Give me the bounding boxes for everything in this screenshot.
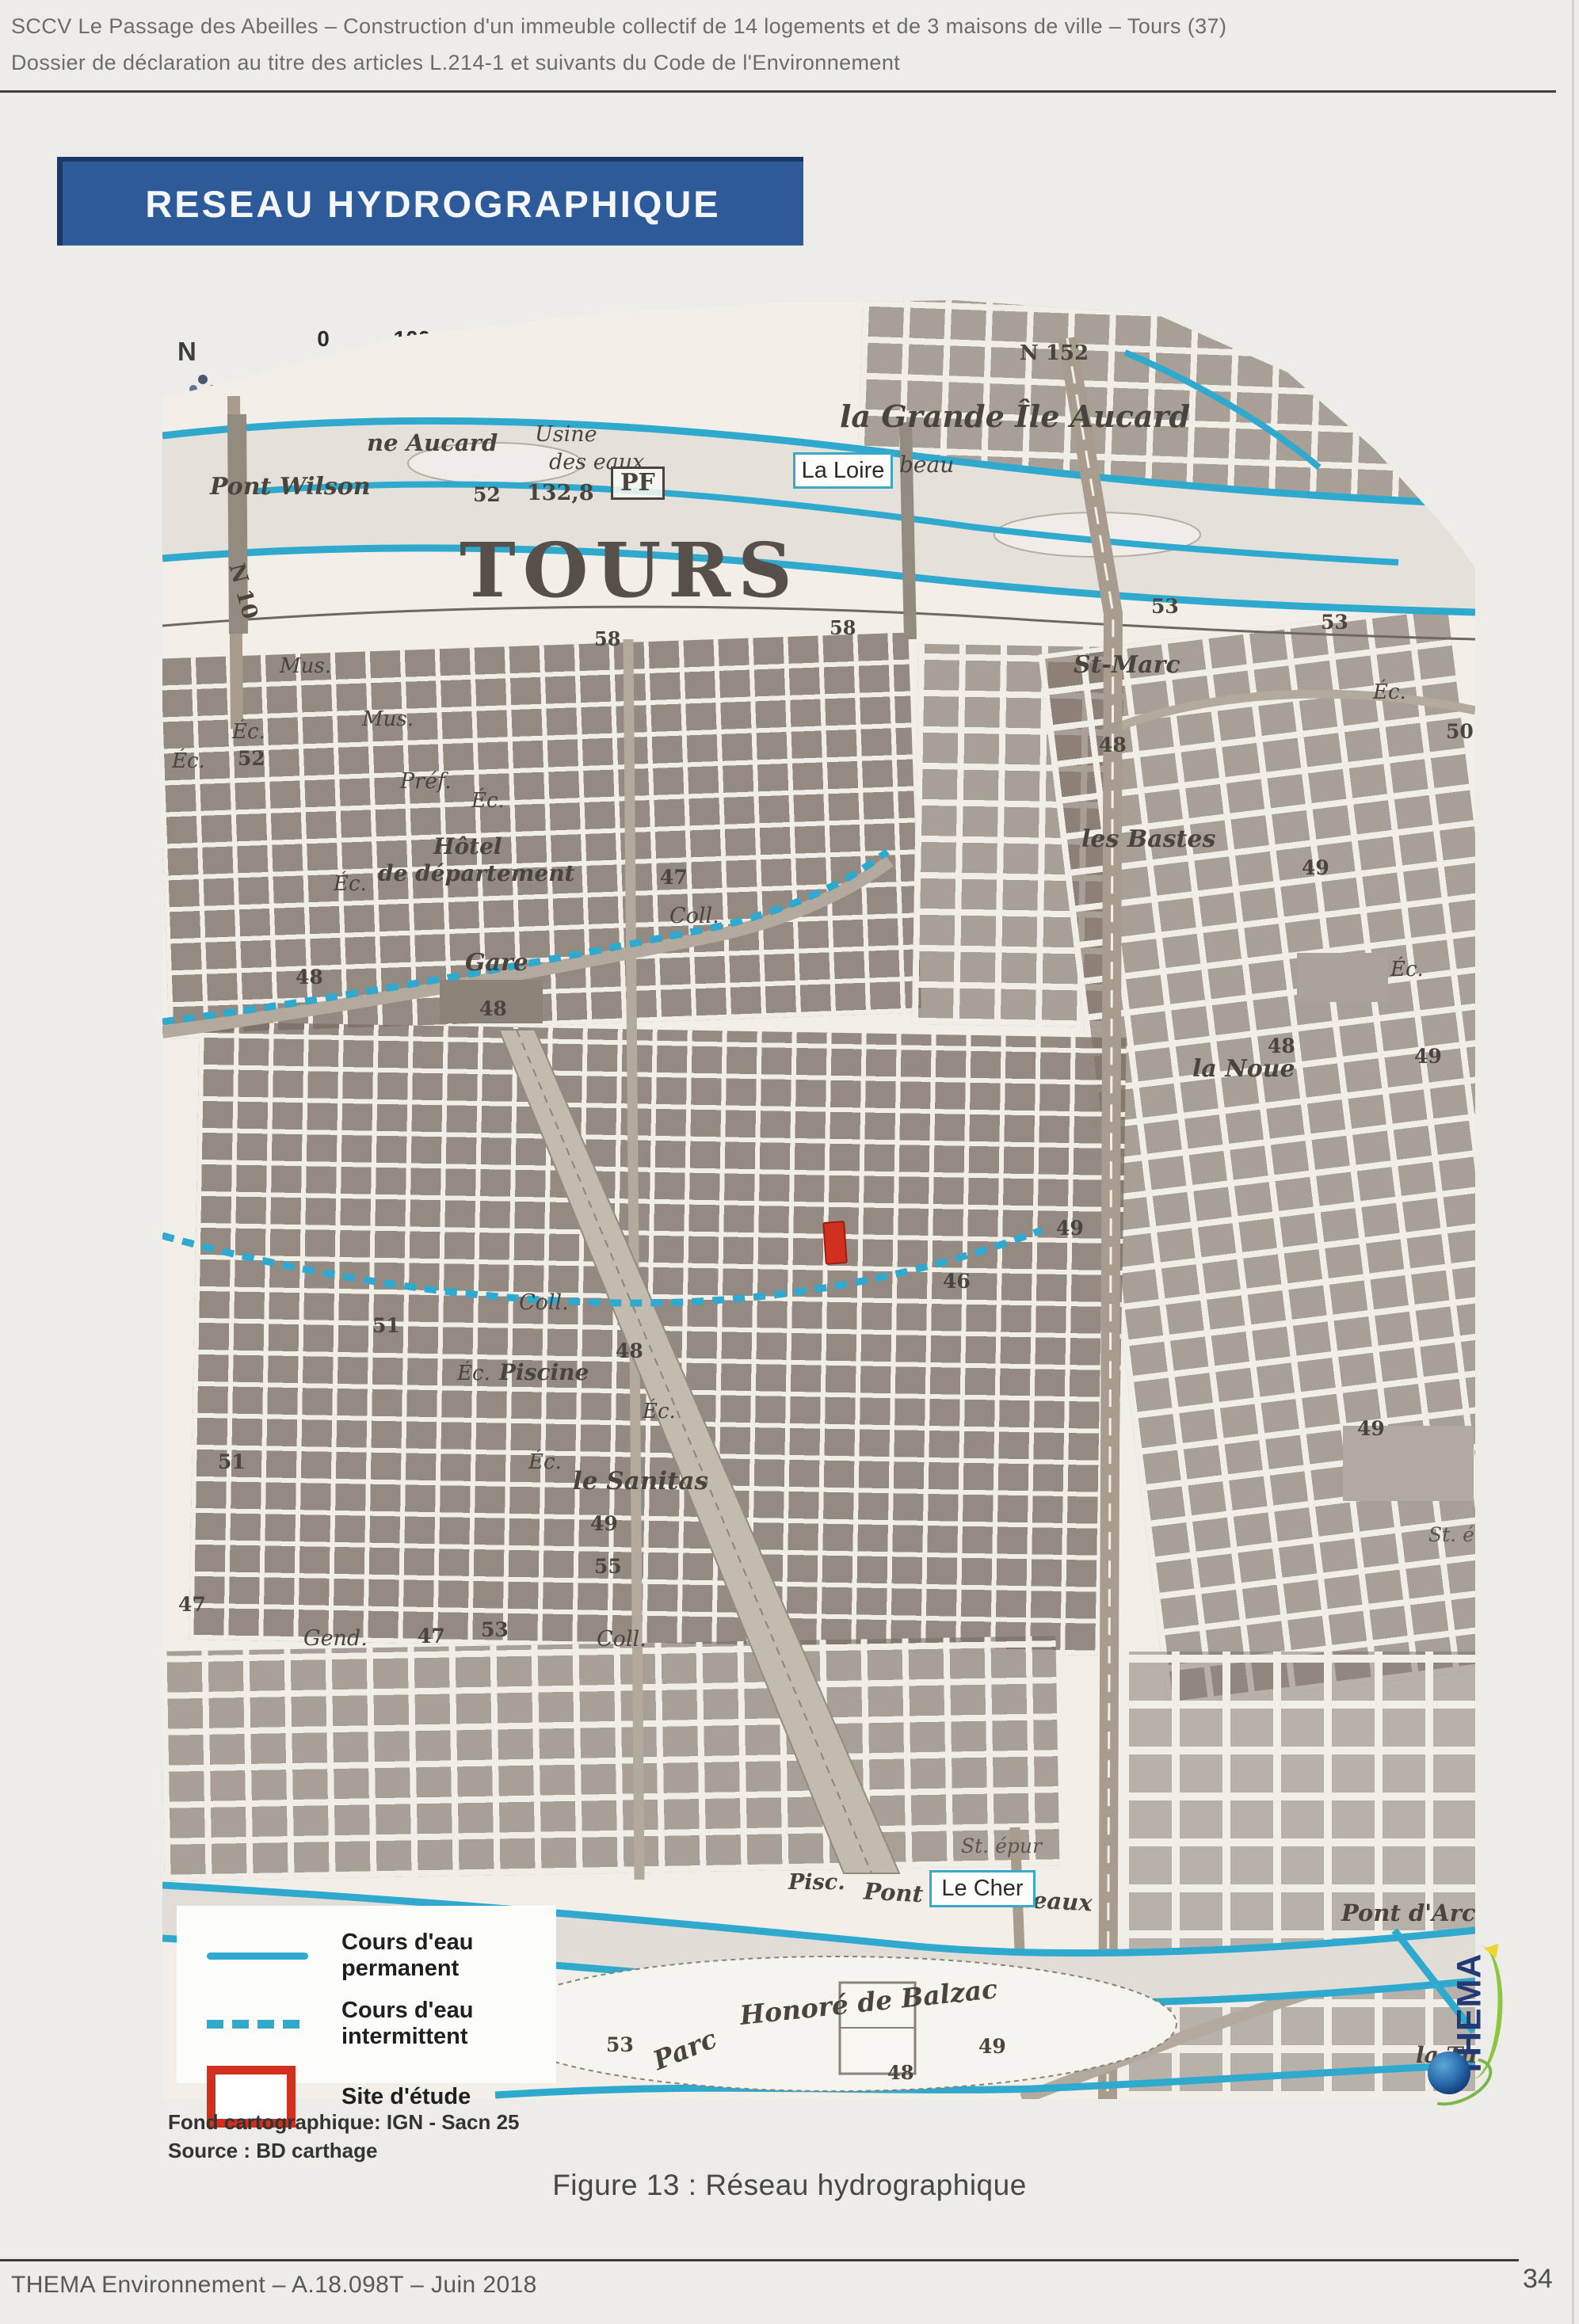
map-label: 48 [616, 1341, 643, 1361]
legend-item: Cours d'eau intermittent [207, 1998, 556, 2050]
map-label: Pont d'Arcole [1341, 1902, 1475, 1925]
map-label: 53 [1151, 596, 1179, 616]
line-dashed-swatch [207, 2020, 299, 2029]
map-label: les Bastes [1081, 828, 1215, 851]
map-label: de département [378, 863, 575, 885]
figure-caption: Figure 13 : Réseau hydrographique [0, 2169, 1579, 2202]
map-label: Préf. [400, 771, 452, 792]
north-label: N [177, 337, 196, 367]
map-label: 52 [238, 749, 265, 768]
map-label: 53 [1321, 612, 1348, 632]
map-label: le Sanitas [573, 1469, 708, 1494]
map-label: 132,8 [527, 482, 594, 504]
header-rule [0, 90, 1556, 93]
scan-edge-line [1572, 0, 1574, 2324]
section-banner: RESEAU HYDROGRAPHIQUE [57, 157, 803, 246]
map-label: 47 [418, 1626, 445, 1646]
section-title: RESEAU HYDROGRAPHIQUE [145, 182, 720, 226]
legend-label: Cours d'eau permanent [341, 1930, 556, 1982]
map-label: Usine [535, 424, 597, 445]
map-label: 52 [473, 485, 501, 505]
map-label: 49 [1414, 1046, 1442, 1066]
map-label: 46 [943, 1271, 971, 1291]
map-label: 58 [594, 630, 620, 649]
map-legend: Cours d'eau permanentCours d'eau intermi… [177, 1906, 556, 2083]
map-label: Honoré de Balzac [738, 1975, 998, 2029]
map-label: la Grande Île Aucard [840, 402, 1190, 432]
footer-text: THEMA Environnement – A.18.098T – Juin 2… [11, 2272, 537, 2299]
map-label: St-Marc [1074, 653, 1180, 677]
map-label: 49 [590, 1514, 618, 1533]
map-label: beau [899, 454, 954, 476]
map-label: 48 [296, 967, 323, 987]
river-callout: Le Cher [929, 1870, 1036, 1907]
source-note-1: Fond cartographique: IGN - Sacn 25 [168, 2110, 520, 2135]
map-label: Éc. [643, 1401, 676, 1422]
map-label: Éc. [528, 1452, 562, 1473]
map-label: 53 [481, 1620, 509, 1640]
map-label: Éc. [334, 874, 367, 894]
map-label: 47 [178, 1594, 206, 1614]
hydrographic-map: TOURSPont WilsonN 10ne AucardUsinedes ea… [162, 297, 1475, 2099]
map-label: Éc. [232, 722, 265, 742]
map-label: Gend. [303, 1628, 368, 1649]
thema-logo: THEMA [1423, 1941, 1512, 2101]
map-label: 50 [1446, 722, 1474, 741]
source-note-2: Source : BD carthage [168, 2139, 377, 2163]
map-label: St. épur [961, 1836, 1042, 1856]
map-label: 48 [887, 2063, 913, 2082]
map-label: la Noue [1192, 1057, 1295, 1081]
map-label: Éc. [457, 1363, 490, 1384]
map-label: Éc. [1373, 682, 1406, 703]
map-label: 49 [978, 2036, 1006, 2056]
map-label: Éc. [471, 791, 505, 811]
map-label: 49 [1357, 1419, 1385, 1438]
map-labels-layer: TOURSPont WilsonN 10ne AucardUsinedes ea… [162, 297, 1475, 2099]
map-label: 49 [1056, 1218, 1084, 1238]
river-callout: La Loire [793, 452, 893, 489]
map-label: 53 [606, 2035, 634, 2055]
map-label: Éc. [172, 751, 205, 771]
page-number: 34 [1523, 2264, 1553, 2295]
scale-tick: 0 [317, 326, 330, 352]
footer-rule [0, 2259, 1519, 2261]
map-label: Hôtel [433, 836, 502, 858]
legend-item: Cours d'eau permanent [207, 1930, 556, 1982]
map-label: N 152 [1020, 343, 1089, 364]
map-label: 51 [218, 1452, 246, 1472]
document-page: SCCV Le Passage des Abeilles – Construct… [0, 0, 1579, 2324]
map-label: TOURS [460, 533, 799, 608]
map-label: Parc [650, 2025, 720, 2074]
line-solid-swatch [207, 1953, 308, 1960]
map-label: 47 [660, 867, 688, 887]
map-label: 48 [1099, 735, 1127, 755]
map-label: N 10 [226, 561, 261, 621]
map-label: Mus. [362, 709, 414, 730]
header-line-2: Dossier de déclaration au titre des arti… [11, 51, 900, 75]
map-label: Coll. [597, 1629, 646, 1650]
map-label: 49 [1302, 858, 1329, 878]
map-label: ne Aucard [367, 432, 498, 455]
legend-label: Cours d'eau intermittent [341, 1998, 556, 2050]
map-label: 51 [372, 1316, 400, 1335]
map-label: Mus. [280, 656, 331, 676]
map-label: 58 [830, 619, 856, 638]
map-label: Coll. [669, 905, 719, 927]
map-label: St. épur. [1428, 1525, 1475, 1545]
map-label: Gare [465, 951, 528, 975]
map-label: PF [611, 467, 665, 500]
map-label: Pont Wilson [210, 475, 371, 499]
map-label: 55 [594, 1556, 622, 1576]
map-label: Coll. [519, 1292, 569, 1313]
legend-label: Site d'étude [341, 2084, 471, 2110]
map-label: Piscine [499, 1362, 589, 1384]
map-label: 48 [479, 999, 507, 1019]
map-label: Pisc. [788, 1872, 845, 1893]
map-label: 48 [1268, 1036, 1295, 1056]
thema-globe-icon [1428, 2052, 1470, 2094]
header-line-1: SCCV Le Passage des Abeilles – Construct… [11, 14, 1226, 39]
map-label: Éc. [1390, 959, 1424, 980]
